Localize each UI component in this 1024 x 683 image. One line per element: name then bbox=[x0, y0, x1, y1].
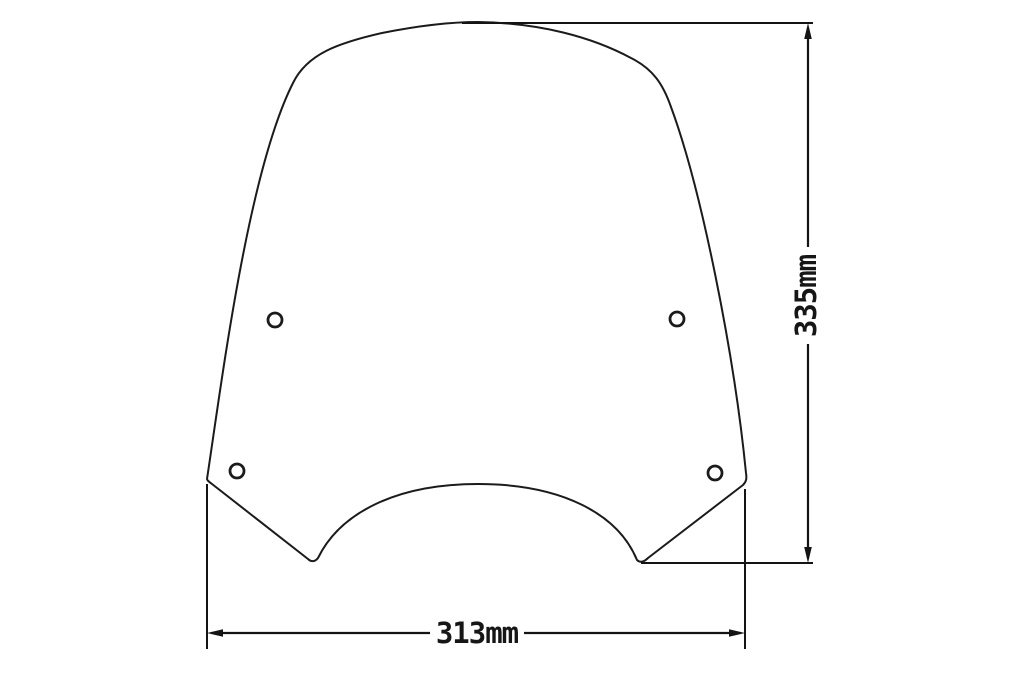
width-arrow-right-icon bbox=[729, 629, 745, 637]
width-dimension-label: 313mm bbox=[436, 616, 519, 650]
mounting-hole-upper-left bbox=[268, 313, 282, 327]
drawing-canvas: 335mm 313mm bbox=[0, 0, 1024, 683]
mounting-hole-lower-left bbox=[230, 464, 244, 478]
mounting-hole-upper-right bbox=[670, 312, 684, 326]
windscreen-outline bbox=[207, 22, 746, 562]
height-dimension-label: 335mm bbox=[789, 254, 823, 337]
height-arrow-up-icon bbox=[804, 23, 812, 39]
mounting-hole-lower-right bbox=[708, 466, 722, 480]
height-arrow-down-icon bbox=[804, 547, 812, 563]
technical-drawing: 335mm 313mm bbox=[0, 0, 1024, 683]
width-arrow-left-icon bbox=[207, 629, 223, 637]
